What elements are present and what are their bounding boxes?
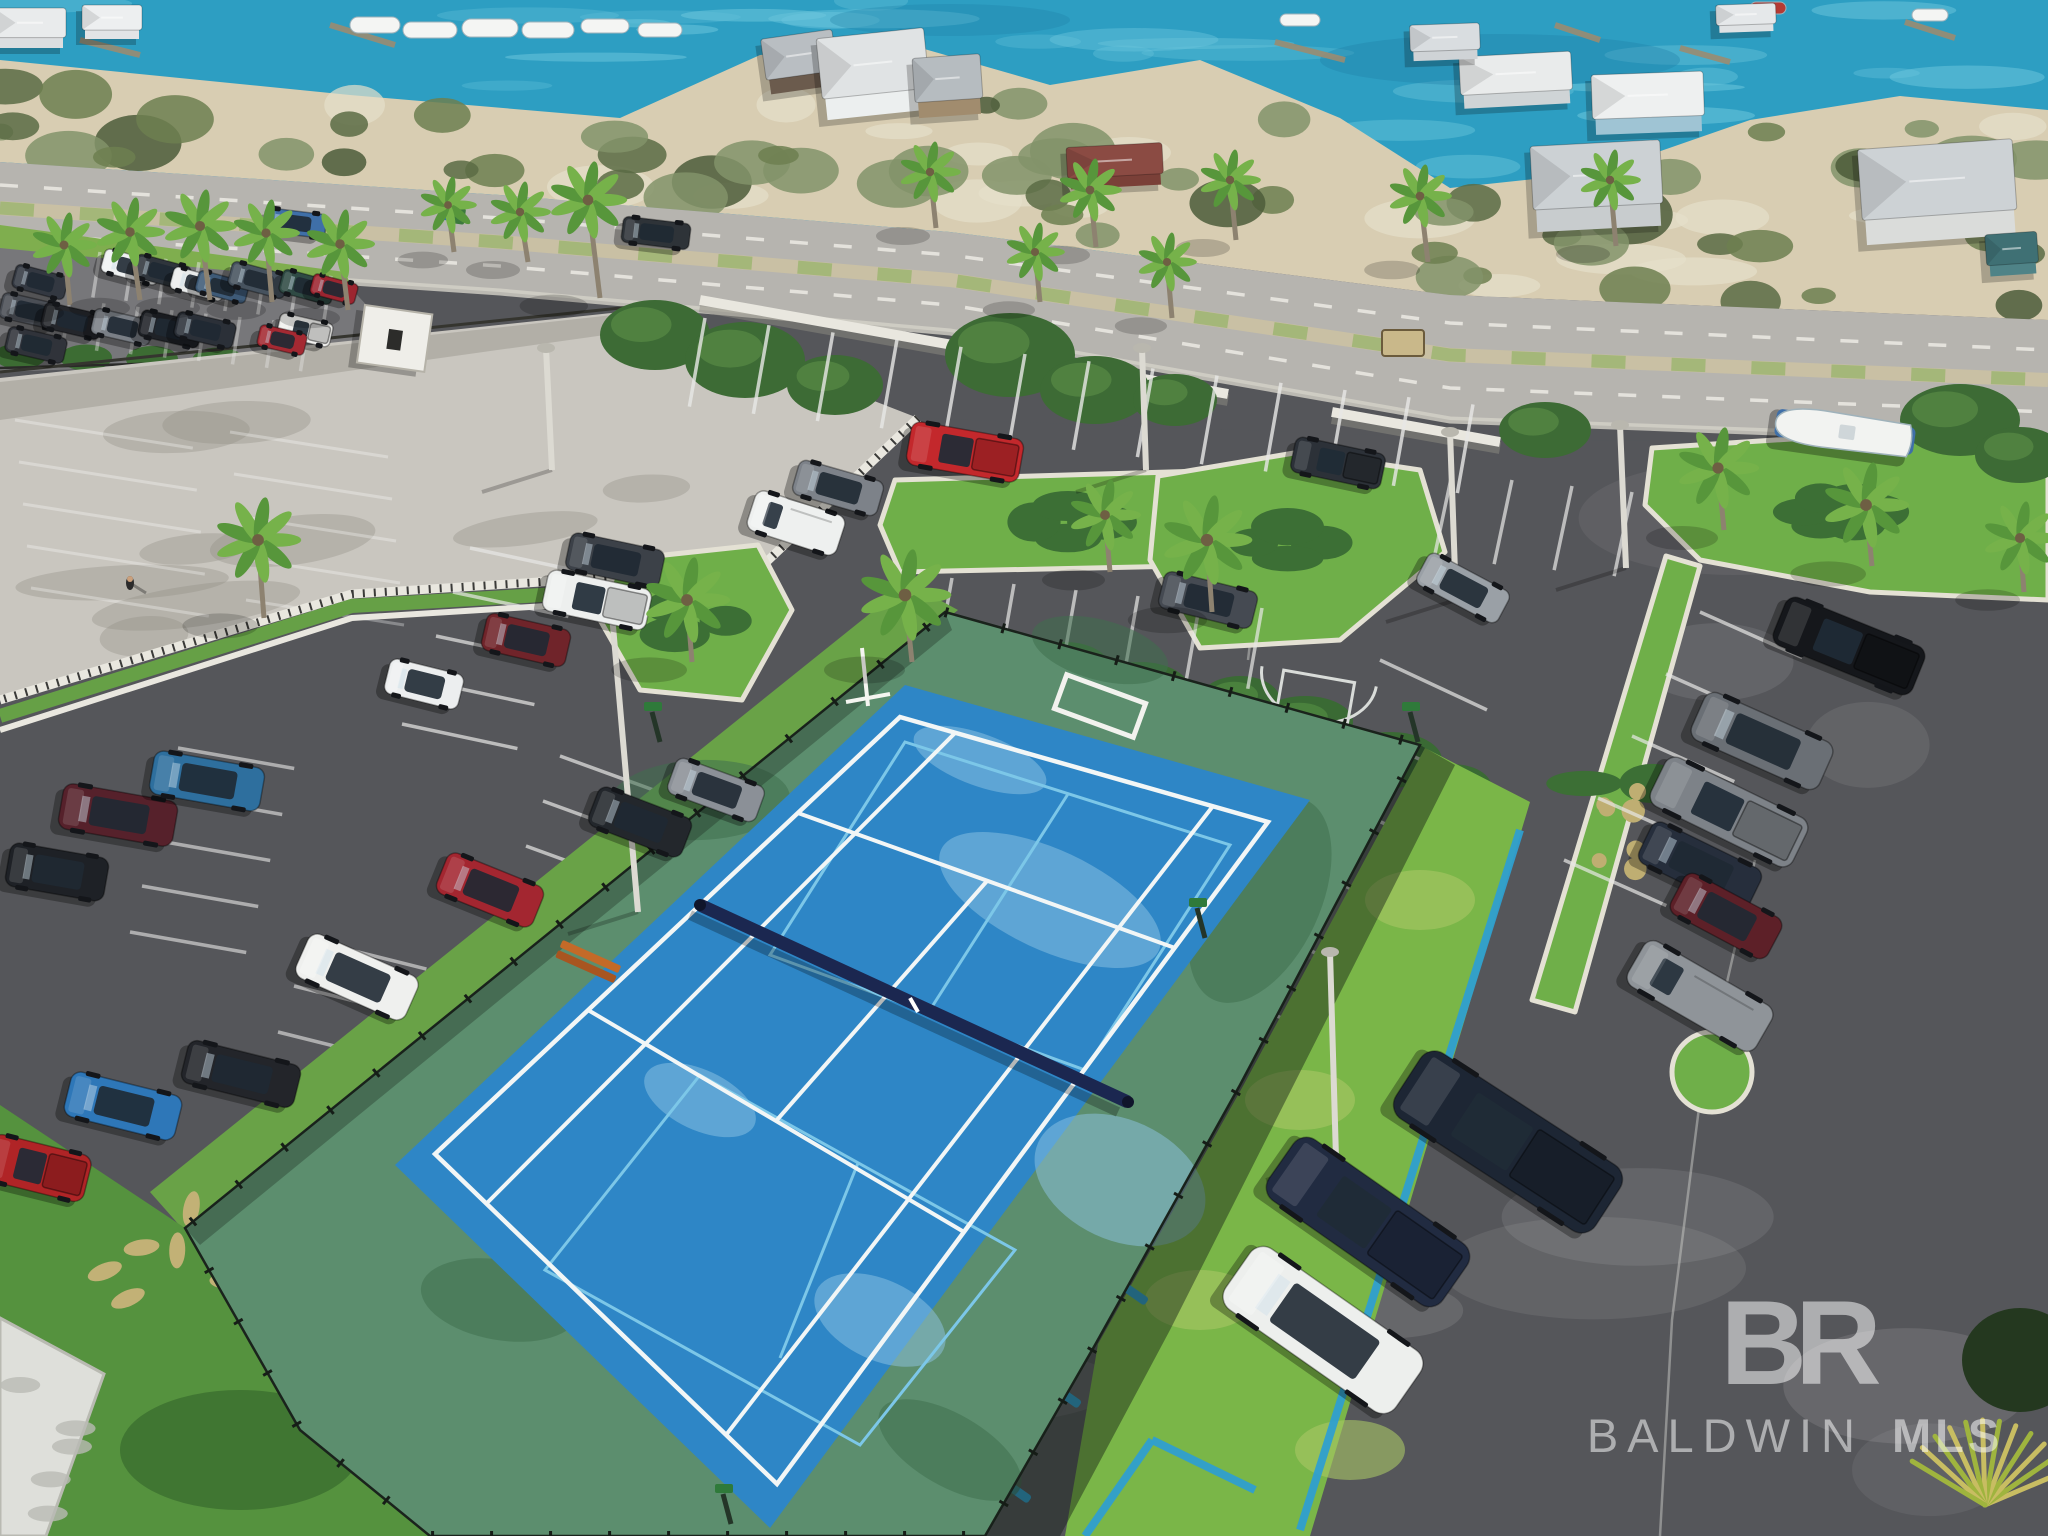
court-light — [644, 702, 662, 711]
light-pole-head — [1441, 427, 1459, 437]
boat — [522, 22, 574, 38]
light-pole-head — [1321, 947, 1339, 957]
boat — [462, 19, 518, 37]
boat — [1280, 14, 1320, 26]
beach-house — [0, 8, 66, 54]
entrance-monument-sign — [1382, 330, 1424, 356]
boat — [350, 17, 400, 33]
stair-enclosure — [348, 304, 432, 378]
beach-house — [1979, 231, 2040, 283]
boat — [403, 22, 457, 38]
boat — [1912, 9, 1948, 21]
light-pole-head — [537, 343, 555, 353]
beach-house — [76, 5, 142, 45]
light-pole-head — [1611, 420, 1629, 430]
beach-house — [1710, 3, 1777, 39]
light-pole-head — [1133, 343, 1151, 353]
court-light — [1189, 898, 1207, 907]
beach-house — [906, 54, 984, 125]
boat — [638, 23, 682, 37]
aerial-scene-canvas — [0, 0, 2048, 1536]
aerial-photo: BR BALDWIN MLS — [0, 0, 2048, 1536]
net-post — [1122, 1096, 1134, 1108]
beach-house — [1403, 23, 1480, 68]
court-light — [715, 1484, 733, 1493]
beach-house — [1585, 71, 1705, 141]
boat — [581, 19, 629, 33]
net-post — [694, 899, 706, 911]
court-light — [1402, 702, 1420, 711]
